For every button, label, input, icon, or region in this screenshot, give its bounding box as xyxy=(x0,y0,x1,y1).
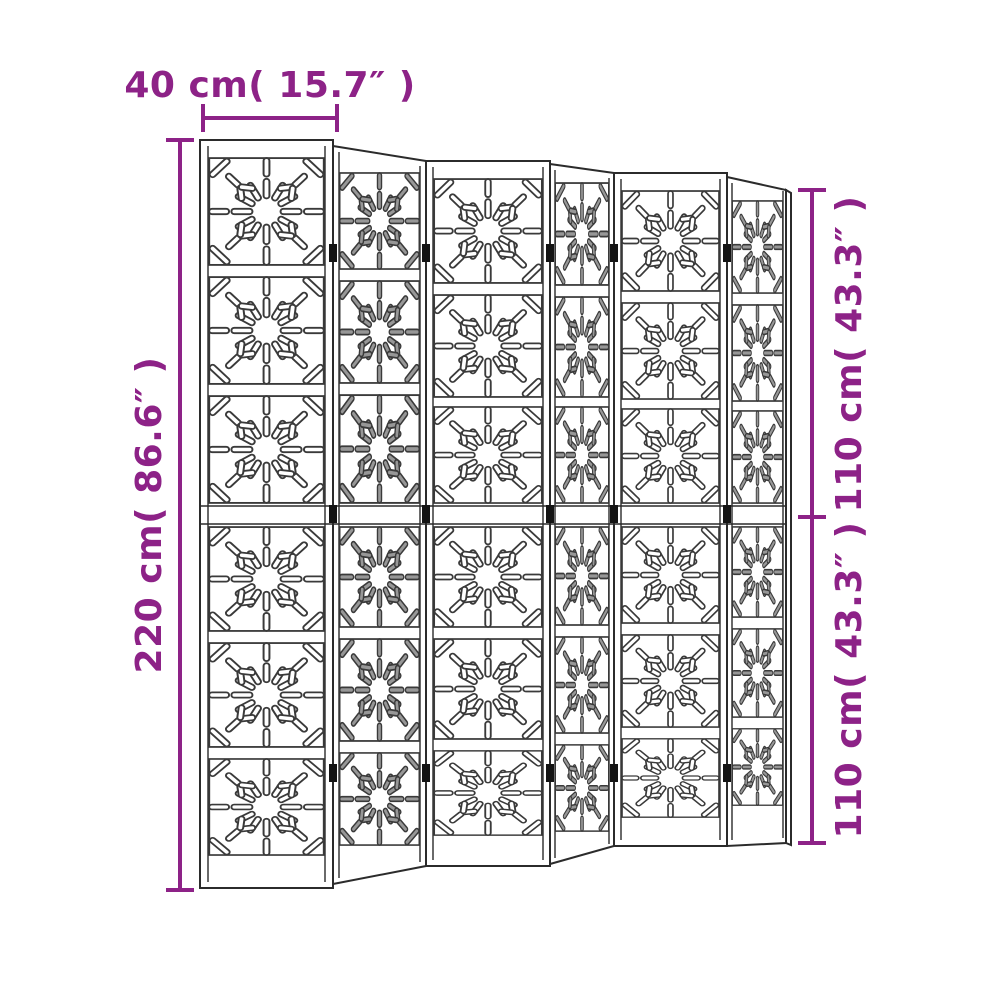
panel-6 xyxy=(727,177,791,846)
dimension-right-upper-height: 110 cm( 43.3″ ) xyxy=(798,190,870,517)
dimension-right-lower-height: 110 cm( 43.3″ ) xyxy=(798,517,870,843)
panel-4 xyxy=(550,164,614,864)
panel-3 xyxy=(426,161,550,866)
panel-5 xyxy=(614,173,727,846)
dimension-top-width: 40 cm( 15.7″ ) xyxy=(124,65,415,132)
panel-width-label: 40 cm( 15.7″ ) xyxy=(124,65,415,106)
dimension-left-total-height: 220 cm( 86.6″ ) xyxy=(129,140,194,890)
product-dimension-diagram: 40 cm( 15.7″ ) 220 cm( 86.6″ ) 110 cm( 4… xyxy=(0,0,1000,1000)
panel-2 xyxy=(333,146,426,884)
panel-1 xyxy=(200,140,333,888)
total-height-label: 220 cm( 86.6″ ) xyxy=(129,357,170,674)
room-divider-illustration xyxy=(200,140,791,888)
lower-section-height-label: 110 cm( 43.3″ ) xyxy=(829,522,870,839)
upper-section-height-label: 110 cm( 43.3″ ) xyxy=(829,196,870,513)
